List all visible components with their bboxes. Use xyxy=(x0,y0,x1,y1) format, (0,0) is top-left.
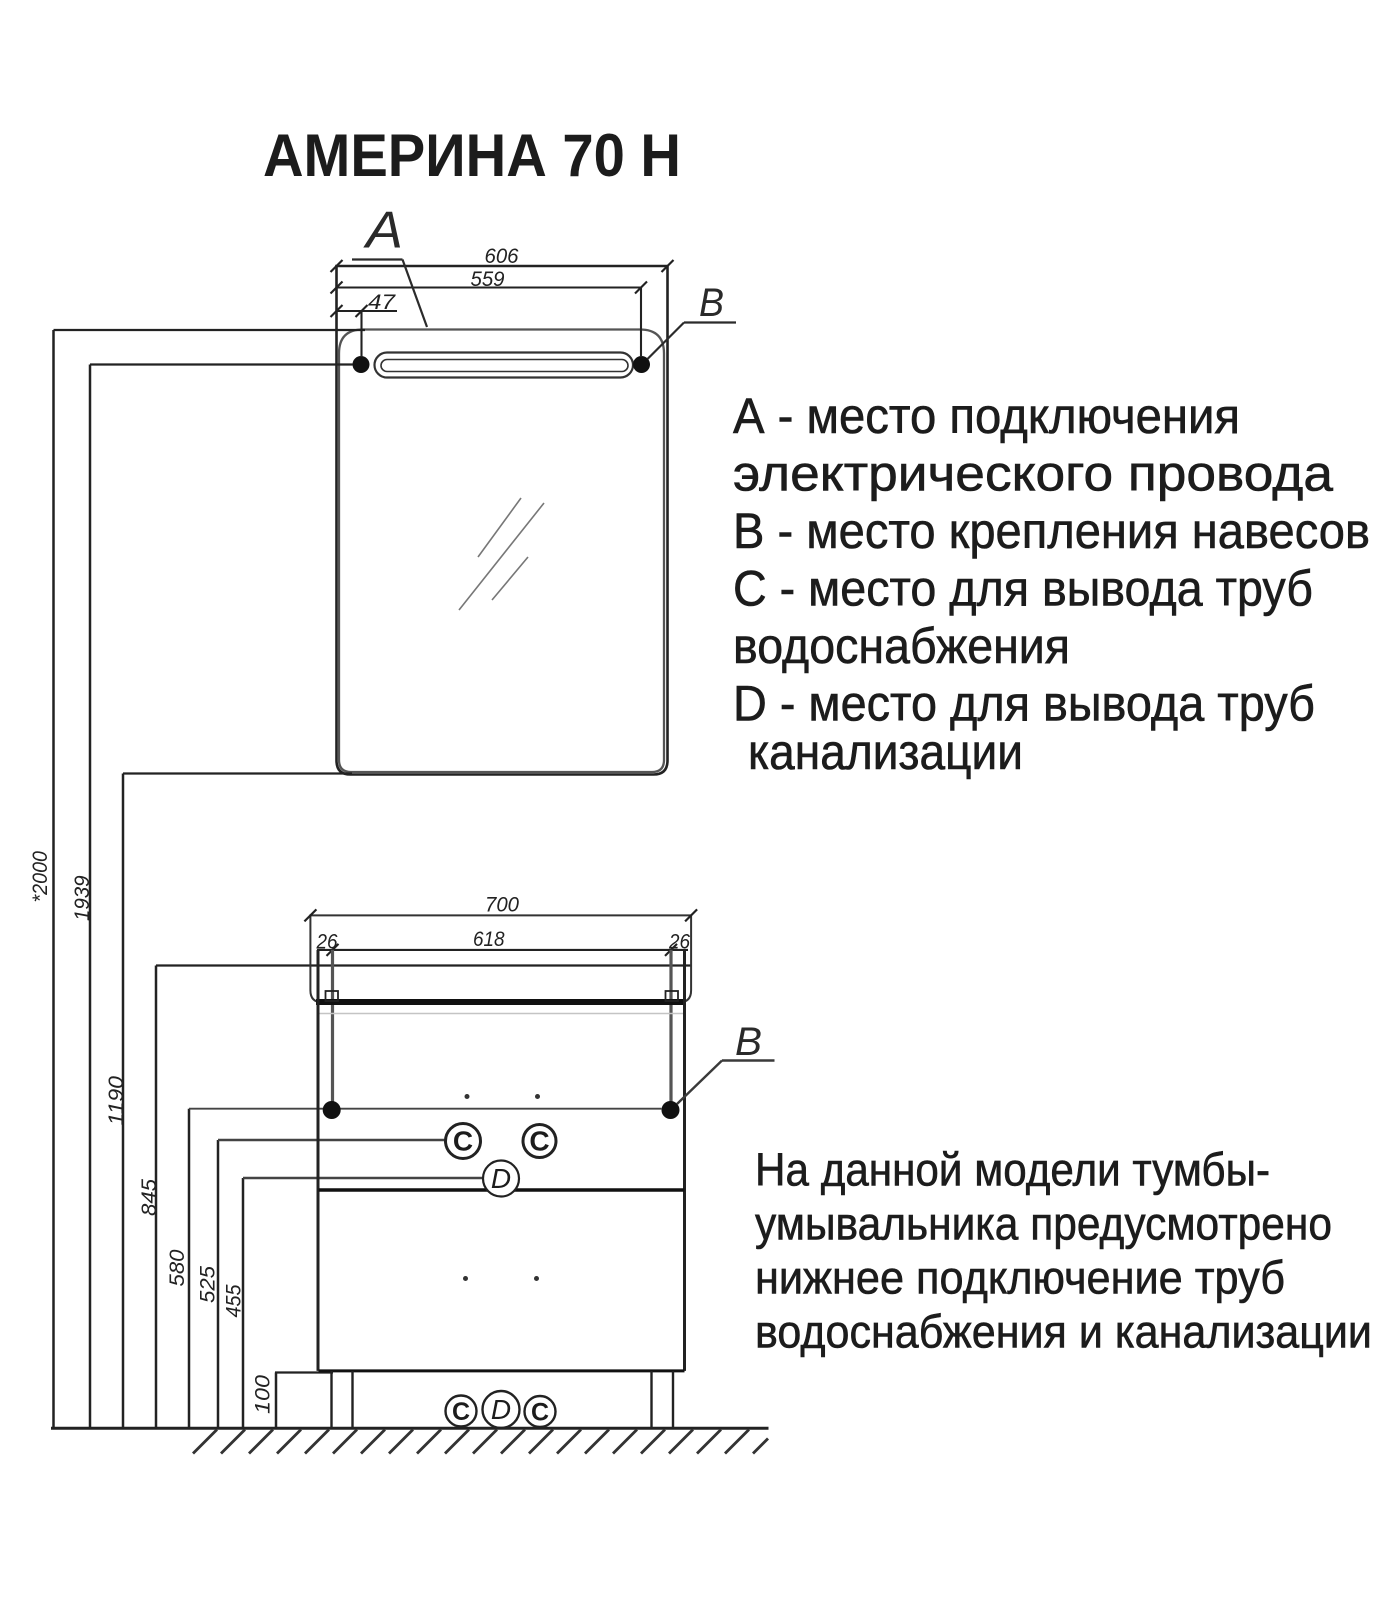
svg-text:A: A xyxy=(363,202,403,260)
svg-text:B: B xyxy=(735,1020,762,1064)
svg-text:канализации: канализации xyxy=(748,724,1023,780)
svg-text:А - место подключения: А - место подключения xyxy=(733,388,1240,444)
svg-text:1939: 1939 xyxy=(71,875,94,921)
svg-text:845: 845 xyxy=(138,1179,161,1216)
svg-text:умывальника предусмотрено: умывальника предусмотрено xyxy=(755,1198,1332,1250)
svg-text:100: 100 xyxy=(252,1375,275,1414)
svg-text:На данной модели тумбы-: На данной модели тумбы- xyxy=(755,1144,1270,1196)
svg-text:559: 559 xyxy=(471,268,505,291)
svg-text:электрического провода: электрического провода xyxy=(733,446,1333,502)
svg-text:АМЕРИНА 70 Н: АМЕРИНА 70 Н xyxy=(263,122,681,189)
svg-text:C: C xyxy=(529,1126,549,1157)
svg-text:1190: 1190 xyxy=(105,1076,128,1126)
svg-text:B: B xyxy=(699,281,724,325)
svg-text:580: 580 xyxy=(166,1249,189,1286)
svg-text:D: D xyxy=(491,1163,511,1194)
svg-text:606: 606 xyxy=(485,245,519,268)
svg-text:C: C xyxy=(452,1398,470,1426)
svg-text:*2000: *2000 xyxy=(29,851,52,903)
svg-text:водоснабжения и канализации: водоснабжения и канализации xyxy=(755,1306,1372,1358)
svg-text:525: 525 xyxy=(197,1266,220,1303)
svg-text:В - место крепления навесов: В - место крепления навесов xyxy=(733,503,1370,559)
svg-text:47: 47 xyxy=(368,291,397,314)
svg-text:618: 618 xyxy=(473,928,505,951)
svg-text:нижнее подключение труб: нижнее подключение труб xyxy=(755,1252,1285,1304)
svg-text:C: C xyxy=(531,1399,549,1427)
svg-text:455: 455 xyxy=(223,1284,246,1317)
svg-text:С - место для вывода труб: С - место для вывода труб xyxy=(733,561,1313,617)
svg-text:C: C xyxy=(453,1126,473,1157)
svg-text:D: D xyxy=(491,1394,511,1425)
svg-text:700: 700 xyxy=(485,894,519,917)
svg-text:водоснабжения: водоснабжения xyxy=(733,618,1070,674)
